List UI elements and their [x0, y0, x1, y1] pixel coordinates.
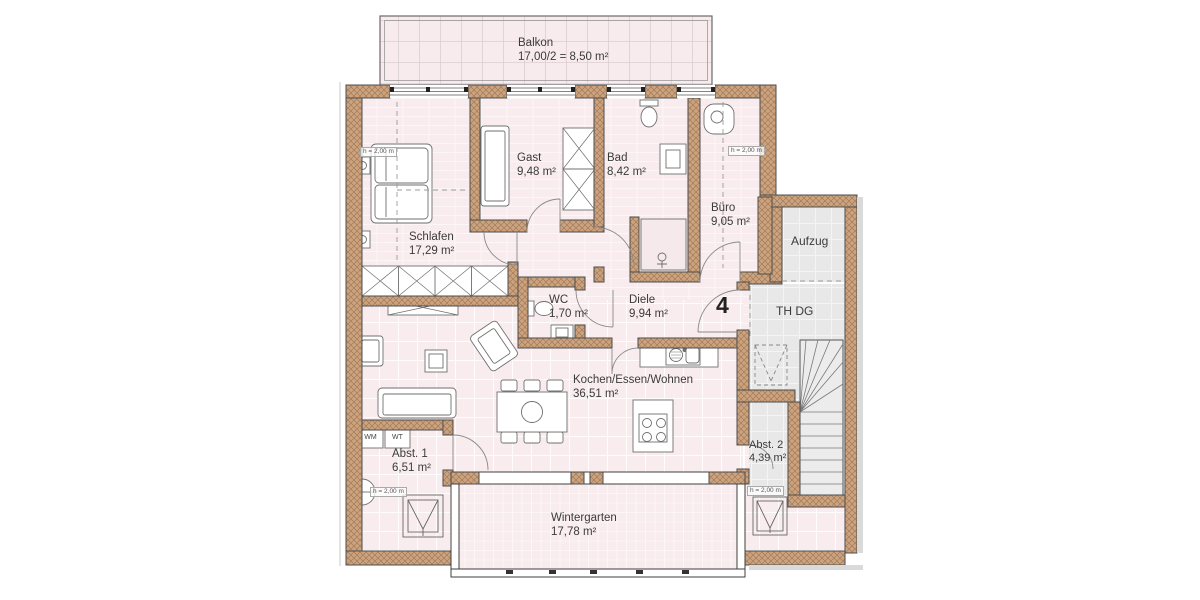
room-area: 17,00/2 = 8,50 m²: [518, 51, 608, 65]
guest-bed: [481, 126, 509, 206]
kitchen-island-cooktop: [633, 400, 673, 452]
room-area: 17,78 m²: [551, 526, 617, 540]
label-thdg: TH DG: [776, 304, 813, 318]
height-note: h = 2,00 m: [747, 486, 784, 496]
column: [571, 472, 584, 484]
label-abst1: Abst. 1 6,51 m²: [392, 448, 431, 475]
room-name: Abst. 2: [749, 439, 786, 452]
label-abst2: Abst. 2 4,39 m²: [749, 439, 786, 465]
height-note: h = 2,00 m: [360, 147, 397, 157]
dining-set: [497, 380, 567, 443]
room-area: 17,29 m²: [409, 245, 454, 259]
sofa: [378, 388, 456, 418]
unit-number: 4: [716, 292, 729, 319]
room-area: 9,05 m²: [711, 216, 750, 230]
washer-label: WM: [358, 428, 383, 448]
room-name: Bad: [607, 152, 646, 166]
label-balkon: Balkon 17,00/2 = 8,50 m²: [518, 37, 608, 64]
height-note: h = 2,00 m: [370, 487, 407, 497]
room-name: Büro: [711, 202, 750, 216]
label-wintergarten: Wintergarten 17,78 m²: [551, 512, 617, 539]
room-name: Diele: [629, 294, 668, 308]
wall-exterior-left: [346, 85, 362, 565]
label-buero: Büro 9,05 m²: [711, 202, 750, 229]
wall-exterior-right: [845, 207, 857, 553]
room-area: 36,51 m²: [573, 388, 693, 402]
column: [590, 472, 603, 484]
side-table: [425, 350, 447, 372]
room-area: 9,94 m²: [629, 308, 668, 322]
label-gast: Gast 9,48 m²: [517, 152, 556, 179]
room-name: Balkon: [518, 37, 608, 51]
height-note: h = 2,00 m: [728, 146, 765, 156]
room-name: Gast: [517, 152, 556, 166]
floorplan-drawing: [0, 0, 1200, 600]
floorplan-page: Balkon 17,00/2 = 8,50 m² Schlafen 17,29 …: [0, 0, 1200, 600]
room-name: Kochen/Essen/Wohnen: [573, 374, 693, 388]
dryer-label: WT: [385, 428, 410, 448]
label-aufzug: Aufzug: [791, 234, 828, 248]
abst2-floor-lower: [788, 503, 845, 553]
office-basin: [704, 104, 734, 134]
shower: [641, 219, 686, 270]
room-name: Schlafen: [409, 231, 454, 245]
label-wc: WC 1,70 m²: [549, 294, 588, 321]
room-area: 1,70 m²: [549, 308, 588, 322]
wardrobe: [362, 266, 508, 296]
label-kochen: Kochen/Essen/Wohnen 36,51 m²: [573, 374, 693, 401]
room-name: WC: [549, 294, 588, 308]
toilet-icon: [640, 100, 658, 127]
room-area: 9,48 m²: [517, 166, 556, 180]
staircase: [800, 340, 843, 497]
room-area: 4,39 m²: [749, 452, 786, 465]
room-name: Abst. 1: [392, 448, 431, 462]
room-name: Wintergarten: [551, 512, 617, 526]
room-area: 6,51 m²: [392, 462, 431, 476]
guest-wardrobe: [563, 128, 595, 210]
label-schlafen: Schlafen 17,29 m²: [409, 231, 454, 258]
bath-vanity: [660, 144, 686, 174]
label-diele: Diele 9,94 m²: [629, 294, 668, 321]
room-area: 8,42 m²: [607, 166, 646, 180]
label-bad: Bad 8,42 m²: [607, 152, 646, 179]
